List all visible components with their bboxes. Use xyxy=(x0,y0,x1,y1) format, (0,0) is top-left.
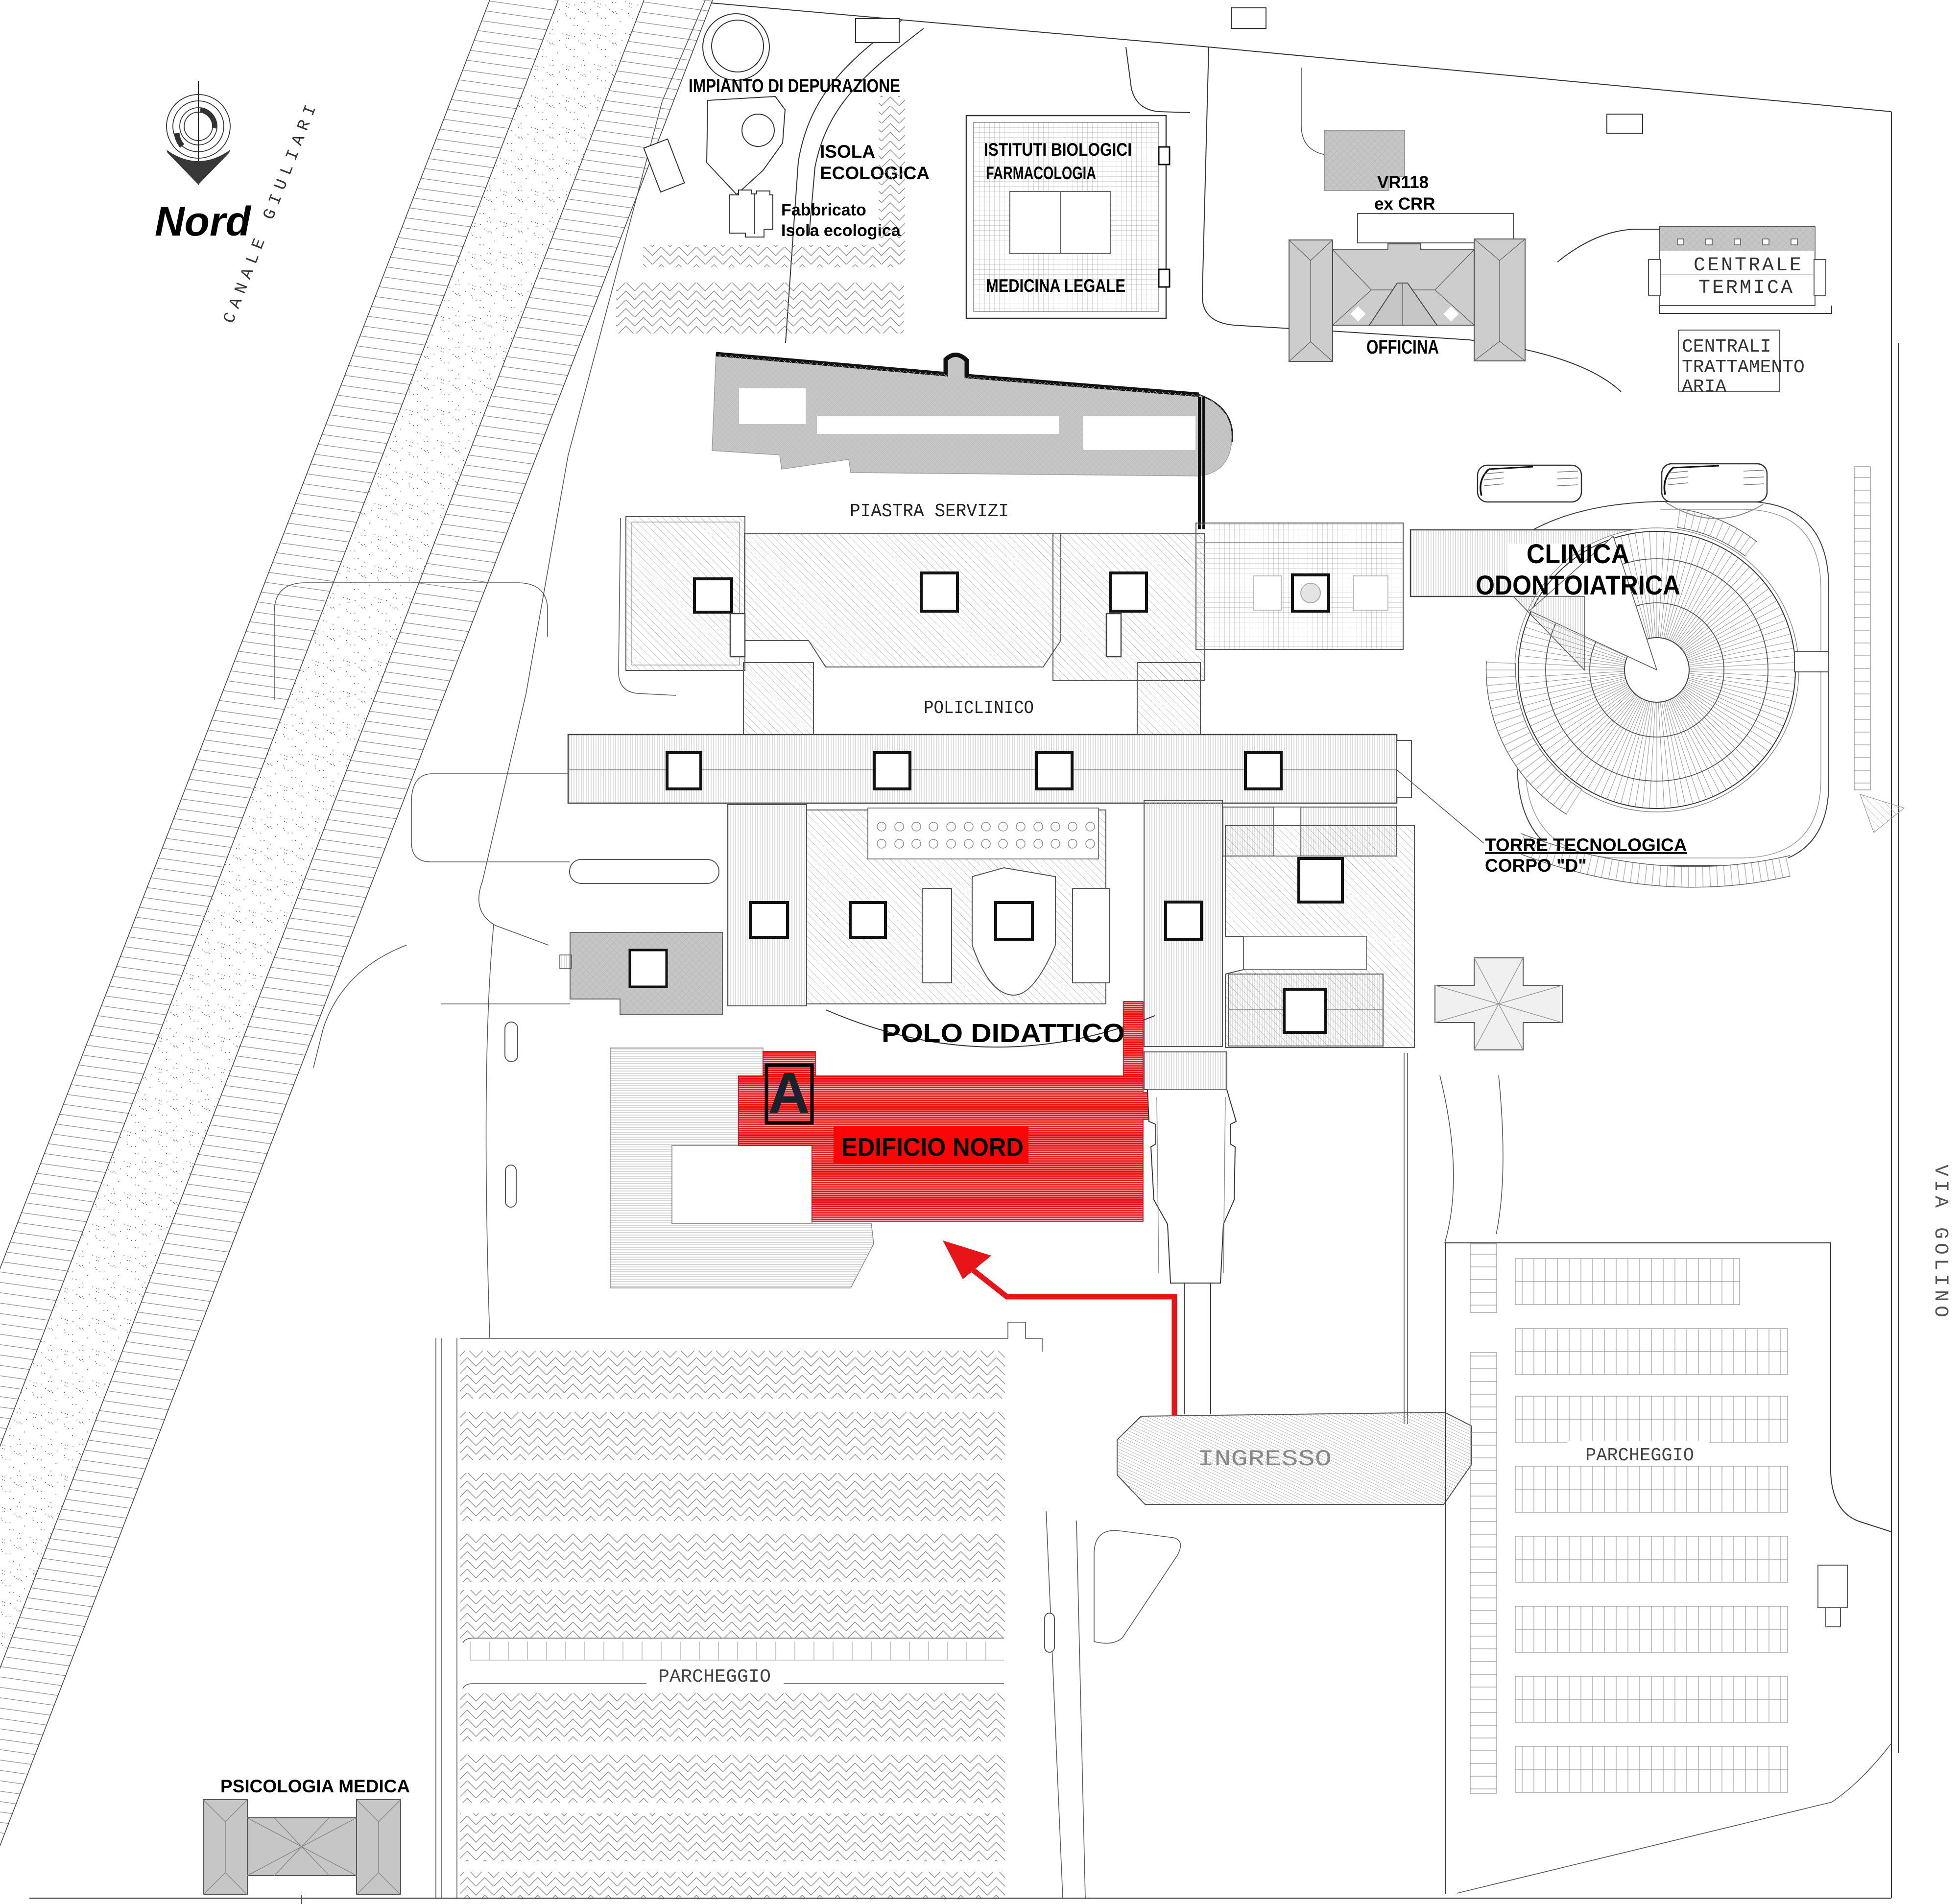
svg-text:IMPIANTO DI DEPURAZIONE: IMPIANTO DI DEPURAZIONE xyxy=(689,76,900,96)
svg-text:PIASTRA SERVIZI: PIASTRA SERVIZI xyxy=(850,501,1009,522)
svg-text:Nord: Nord xyxy=(155,198,252,244)
svg-text:FARMACOLOGIA: FARMACOLOGIA xyxy=(986,163,1096,183)
svg-text:PSICOLOGIA MEDICA: PSICOLOGIA MEDICA xyxy=(220,1776,410,1796)
svg-text:OFFICINA: OFFICINA xyxy=(1366,336,1439,358)
svg-text:POLICLINICO: POLICLINICO xyxy=(924,698,1034,719)
svg-text:VIA GOLINO: VIA GOLINO xyxy=(1929,1165,1951,1321)
svg-text:ECOLOGICA: ECOLOGICA xyxy=(820,163,930,183)
svg-text:TRATTAMENTO: TRATTAMENTO xyxy=(1682,357,1805,378)
svg-text:TERMICA: TERMICA xyxy=(1698,277,1794,299)
svg-text:ARIA: ARIA xyxy=(1682,377,1726,398)
svg-text:MEDICINA LEGALE: MEDICINA LEGALE xyxy=(986,276,1125,296)
svg-text:ex CRR: ex CRR xyxy=(1374,194,1435,214)
svg-text:EDIFICIO NORD: EDIFICIO NORD xyxy=(841,1133,1024,1162)
svg-text:PARCHEGGIO: PARCHEGGIO xyxy=(658,1666,771,1688)
svg-text:CENTRALE: CENTRALE xyxy=(1694,255,1803,277)
svg-text:INGRESSO: INGRESSO xyxy=(1197,1447,1332,1472)
svg-text:PARCHEGGIO: PARCHEGGIO xyxy=(1585,1445,1694,1466)
svg-text:A: A xyxy=(768,1061,810,1125)
svg-text:CORPO "D": CORPO "D" xyxy=(1485,856,1587,876)
svg-text:TORRE TECNOLOGICA: TORRE TECNOLOGICA xyxy=(1485,835,1687,855)
svg-text:VR118: VR118 xyxy=(1377,173,1429,192)
svg-text:ISTITUTI BIOLOGICI: ISTITUTI BIOLOGICI xyxy=(984,140,1132,160)
svg-text:POLO DIDATTICO: POLO DIDATTICO xyxy=(882,1019,1125,1048)
svg-text:CLINICA: CLINICA xyxy=(1527,538,1629,569)
svg-text:ISOLA: ISOLA xyxy=(820,142,875,162)
svg-text:Fabbricato: Fabbricato xyxy=(781,201,866,219)
svg-text:ODONTOIATRICA: ODONTOIATRICA xyxy=(1476,570,1680,600)
svg-text:CENTRALI: CENTRALI xyxy=(1682,336,1771,357)
